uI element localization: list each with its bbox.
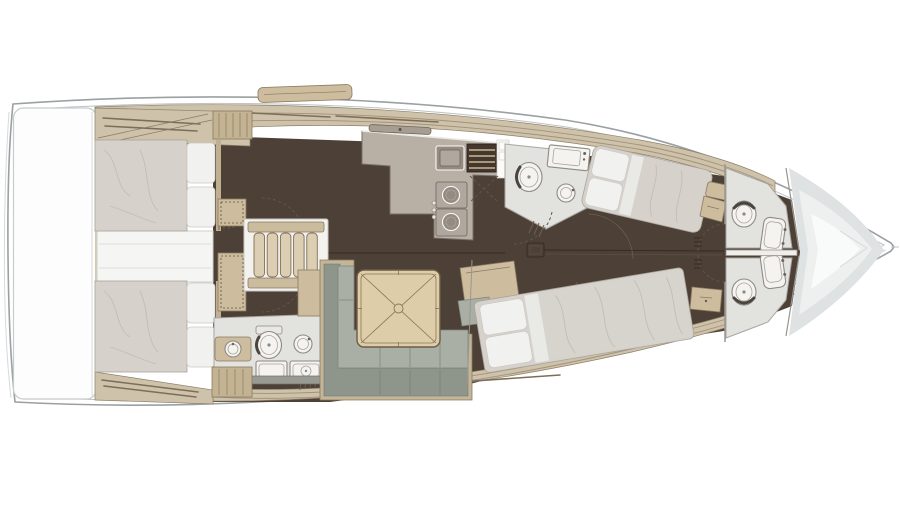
mid-head-sink [547, 145, 590, 171]
pillow-1 [187, 143, 215, 183]
side-cabinet-top [218, 199, 246, 226]
shower-sump [250, 376, 323, 384]
toilet-mid [516, 163, 542, 192]
toilet-bow-port [732, 201, 756, 227]
vanity-unit [215, 337, 251, 361]
floorplan-svg [0, 0, 900, 506]
wardrobe-aft-head [212, 367, 252, 397]
toilet-bow-starboard [732, 279, 756, 305]
engine-hatch [97, 231, 213, 282]
bedside-cabinet-starboard [690, 287, 722, 312]
bow-centerline-wall [726, 250, 797, 256]
side-cabinet-bottom [218, 253, 246, 311]
round-basin-aft [294, 335, 312, 353]
pillow-1 [187, 283, 215, 323]
galley-sink-square [436, 146, 464, 170]
round-basin-mid [557, 184, 575, 202]
stair-rail-top [248, 222, 324, 232]
icebox-slatted [467, 144, 497, 172]
engine-compartment [97, 231, 213, 282]
pillow-2 [187, 187, 215, 227]
galley-twin-sinks [432, 182, 467, 236]
toilet-aft [256, 326, 282, 359]
corner-cabinet [298, 270, 322, 316]
cockpit-coaming [258, 84, 352, 102]
salon-table [357, 270, 440, 347]
pillow-2 [187, 327, 215, 367]
platform-shape [14, 108, 97, 399]
yacht-floorplan [0, 0, 900, 506]
forepeak [789, 168, 884, 336]
wardrobe-port [213, 111, 252, 139]
stern-swim-platform [14, 108, 100, 399]
